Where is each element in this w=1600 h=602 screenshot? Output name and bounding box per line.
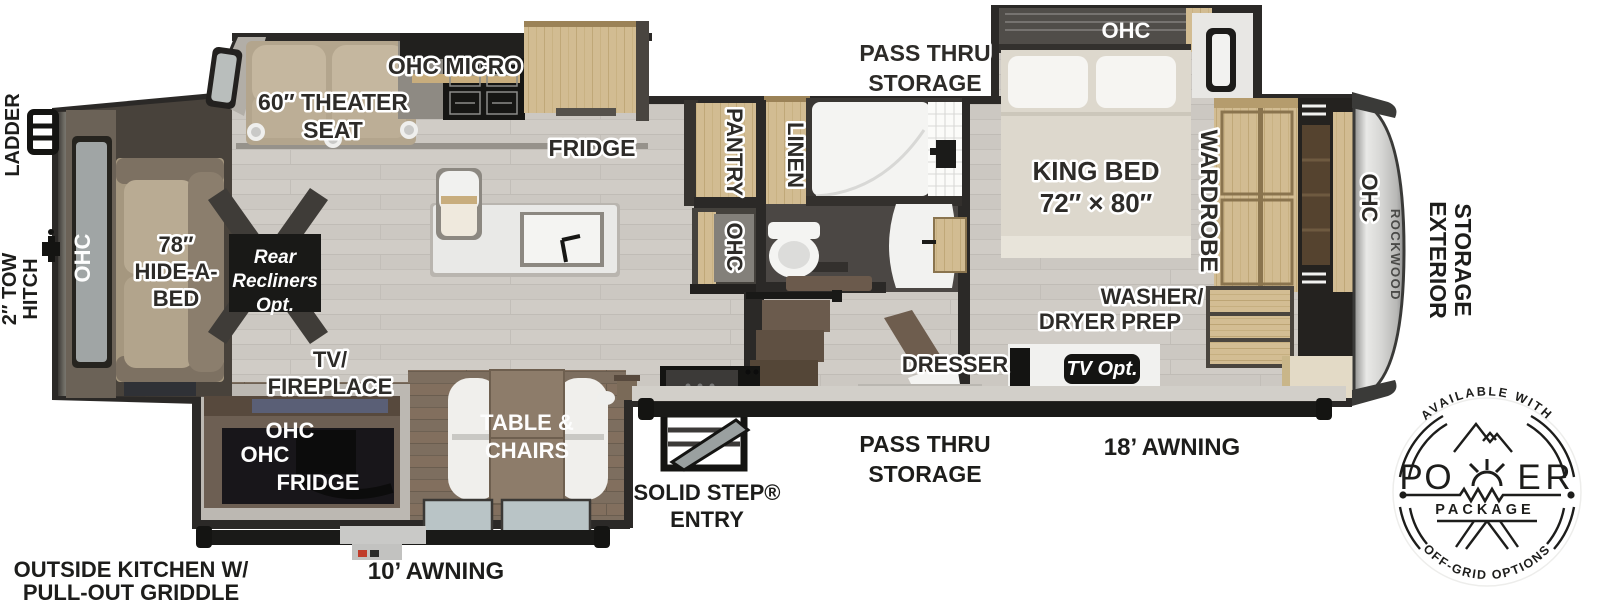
svg-text:ROCKWOOD: ROCKWOOD	[1388, 209, 1403, 301]
svg-text:OHC: OHC	[241, 442, 290, 467]
svg-text:72″ × 80″: 72″ × 80″	[1040, 188, 1152, 218]
svg-text:BED: BED	[153, 286, 199, 311]
svg-text:OHC: OHC	[1357, 174, 1382, 223]
svg-text:STORAGE: STORAGE	[1450, 203, 1476, 316]
svg-text:18’ AWNING: 18’ AWNING	[1104, 434, 1240, 461]
svg-text:OHC: OHC	[1102, 18, 1151, 43]
svg-text:STORAGE: STORAGE	[868, 461, 981, 487]
svg-text:FIREPLACE: FIREPLACE	[268, 374, 393, 399]
svg-text:OHC MICRO: OHC MICRO	[388, 53, 522, 79]
svg-text:HIDE-A-: HIDE-A-	[134, 259, 217, 284]
svg-text:HITCH: HITCH	[20, 258, 42, 319]
svg-text:OUTSIDE KITCHEN W/: OUTSIDE KITCHEN W/	[14, 557, 249, 582]
svg-text:PASS THRU: PASS THRU	[859, 40, 990, 66]
svg-text:10’ AWNING: 10’ AWNING	[368, 558, 504, 585]
svg-text:LINEN: LINEN	[783, 122, 808, 188]
svg-text:R: R	[1545, 458, 1570, 497]
svg-text:KING BED: KING BED	[1032, 156, 1159, 186]
svg-text:PANTRY: PANTRY	[722, 108, 747, 196]
svg-text:WASHER/: WASHER/	[1101, 284, 1204, 309]
svg-text:SOLID STEP®: SOLID STEP®	[633, 480, 780, 505]
svg-text:PACKAGE: PACKAGE	[1435, 502, 1534, 518]
svg-text:DRYER PREP: DRYER PREP	[1039, 309, 1181, 334]
svg-text:Opt.: Opt.	[256, 295, 294, 316]
svg-text:OHC: OHC	[266, 418, 315, 443]
svg-text:STORAGE: STORAGE	[868, 70, 981, 96]
svg-text:WARDROBE: WARDROBE	[1195, 130, 1222, 273]
svg-text:E: E	[1517, 458, 1540, 497]
svg-text:LADDER: LADDER	[2, 93, 24, 177]
svg-text:OHC: OHC	[70, 233, 95, 282]
svg-text:TV/: TV/	[313, 347, 347, 372]
svg-text:PASS THRU: PASS THRU	[859, 431, 990, 457]
svg-text:OHC: OHC	[722, 223, 747, 272]
svg-text:O: O	[1424, 458, 1451, 497]
svg-text:Recliners: Recliners	[232, 271, 318, 292]
svg-text:Rear: Rear	[254, 247, 298, 268]
svg-text:PULL-OUT GRIDDLE: PULL-OUT GRIDDLE	[23, 580, 239, 602]
svg-text:78″: 78″	[158, 232, 193, 257]
svg-text:DRESSER: DRESSER	[902, 352, 1008, 377]
svg-text:60″ THEATER: 60″ THEATER	[258, 89, 408, 115]
svg-text:FRIDGE: FRIDGE	[276, 470, 359, 495]
svg-text:TABLE &: TABLE &	[480, 410, 574, 435]
svg-text:TV Opt.: TV Opt.	[1066, 358, 1137, 380]
svg-text:P: P	[1399, 458, 1422, 497]
svg-text:CHAIRS: CHAIRS	[485, 438, 569, 463]
svg-text:ENTRY: ENTRY	[670, 507, 744, 532]
svg-text:EXTERIOR: EXTERIOR	[1425, 201, 1451, 319]
svg-text:SEAT: SEAT	[303, 117, 363, 143]
svg-text:FRIDGE: FRIDGE	[549, 135, 636, 161]
svg-text:2″ TOW: 2″ TOW	[0, 253, 21, 326]
